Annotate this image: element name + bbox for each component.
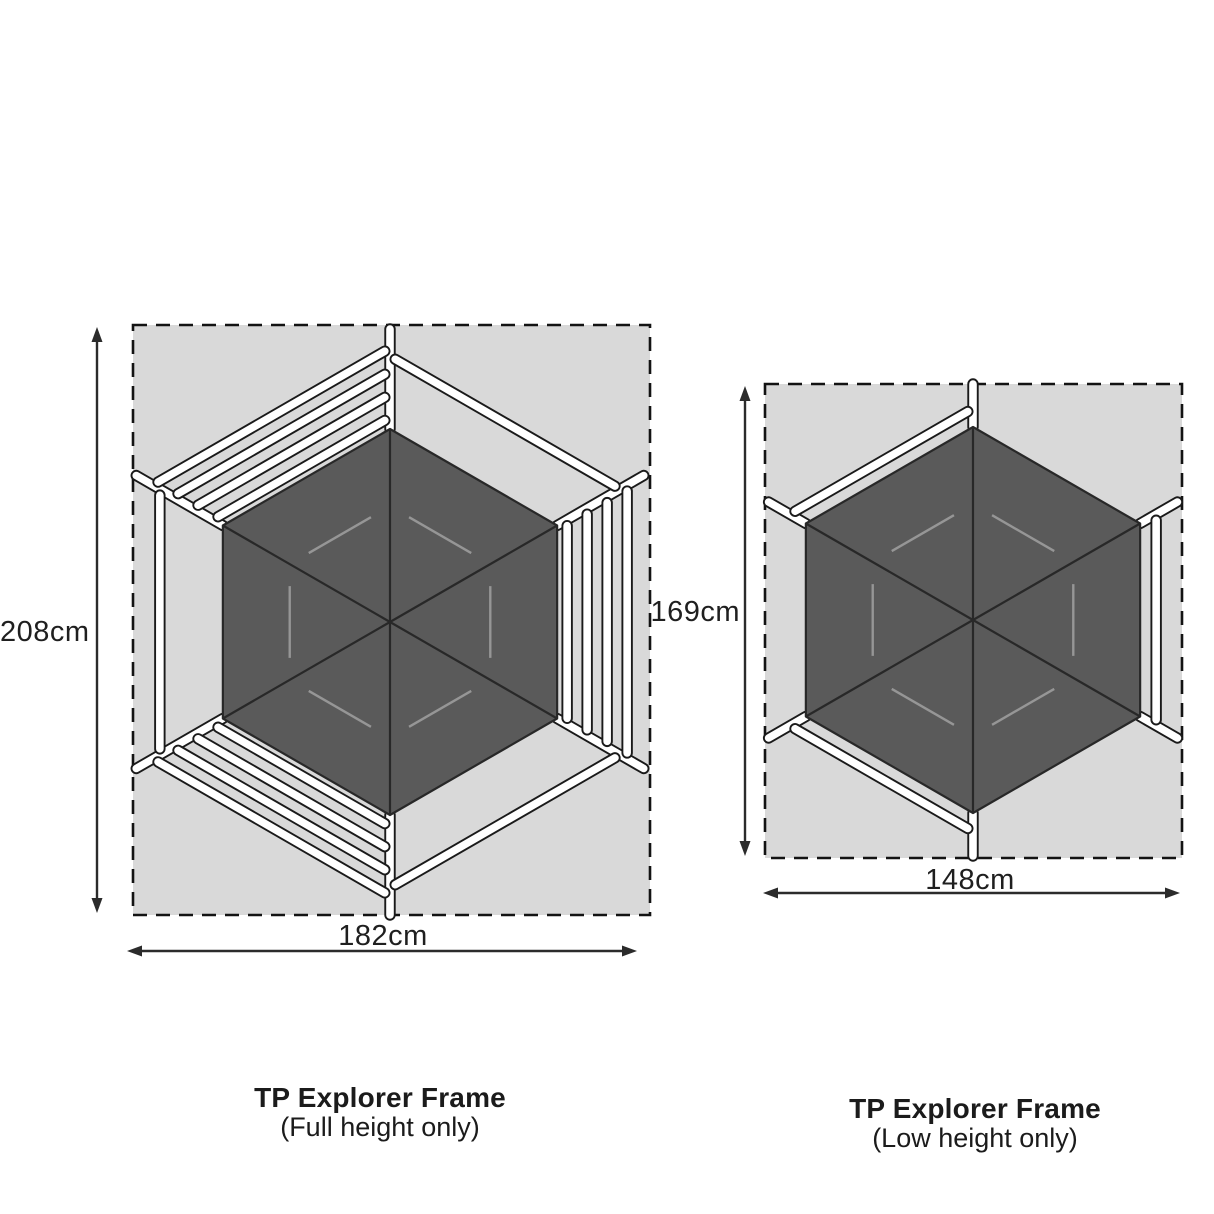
- arrowhead: [1165, 888, 1180, 899]
- arrowhead: [92, 898, 103, 913]
- height-dimension-label-low: 169cm: [648, 598, 740, 627]
- arrowhead: [740, 841, 751, 856]
- caption-title-full: TP Explorer Frame: [160, 1083, 600, 1112]
- diagram-full-height: [92, 325, 651, 957]
- height-dimension-label-full: 208cm: [0, 618, 86, 647]
- width-dimension-label-full: 182cm: [283, 922, 483, 951]
- frame-diagrams-svg: [0, 0, 1214, 1214]
- diagram-canvas: 208cm 182cm 169cm 148cm TP Explorer Fram…: [0, 0, 1214, 1214]
- arrowhead: [92, 327, 103, 342]
- caption-title-low: TP Explorer Frame: [755, 1094, 1195, 1123]
- diagram-low-height: [740, 384, 1183, 899]
- arrowhead: [622, 946, 637, 957]
- arrowhead: [740, 386, 751, 401]
- caption-subtitle-full: (Full height only): [160, 1113, 600, 1141]
- caption-subtitle-low: (Low height only): [755, 1124, 1195, 1152]
- width-dimension-label-low: 148cm: [870, 866, 1070, 895]
- arrowhead: [763, 888, 778, 899]
- arrowhead: [127, 946, 142, 957]
